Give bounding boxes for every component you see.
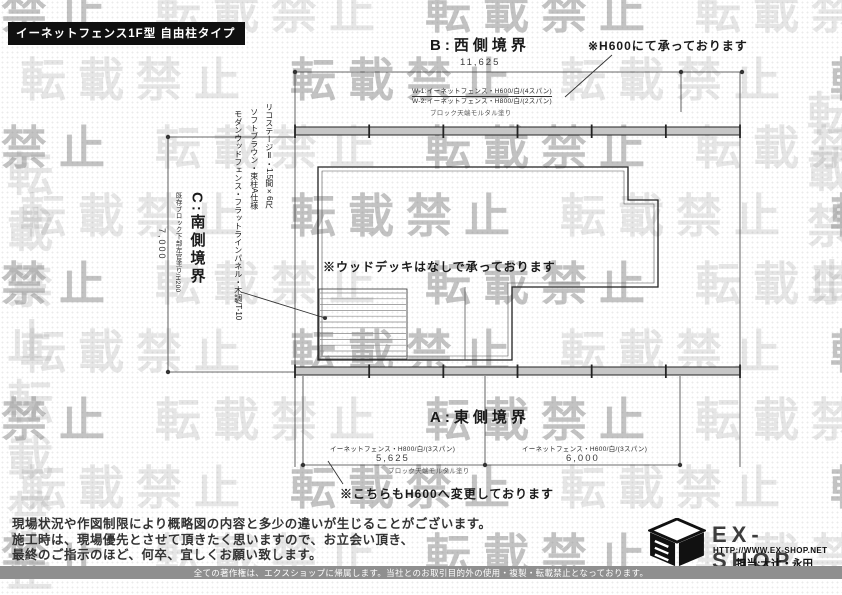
- footer-disclaimer: 現場状況や作図制限により概略図の内容と多少の違いが生じることがございます。 施工…: [12, 517, 492, 564]
- watermark-text: 転載禁止: [0, 112, 117, 178]
- drawing-page: 転載禁止転載禁止転載禁止転載禁止転載禁止転載禁止転載禁止転載禁止転載禁止転載禁止…: [0, 0, 842, 595]
- drawing-title-box: イーネットフェンス1F型 自由柱タイプ: [8, 22, 245, 45]
- east-block-note: ブロック天端モルタル塗り: [388, 468, 470, 475]
- disclaimer-line-1: 現場状況や作図制限により概略図の内容と多少の違いが生じることがございます。: [12, 517, 492, 533]
- west-fence-spec-w2: W-2:イーネットフェンス・H800/白/(2スパン): [412, 98, 552, 105]
- wood-deck: [319, 289, 407, 359]
- watermark-text: 転載禁止: [0, 248, 117, 314]
- east-seg1-dimension: 5,625: [376, 454, 410, 464]
- deck-product-line3: モダンウッドフェンス・フラットラインパネル・木調/T-10: [233, 110, 242, 320]
- deck-leader-dot: [323, 316, 327, 320]
- disclaimer-line-2: 施工時は、現場優先とさせて頂きたく思いますので、お立会い頂き、: [12, 533, 492, 549]
- disclaimer-line-3: 最終のご指示のほど、何卒、宜しくお願い致します。: [12, 548, 492, 564]
- deck-product-line2: ソフトブラウン・束柱A仕様: [249, 108, 258, 209]
- watermark-text-vertical: 転載禁止: [0, 150, 60, 374]
- fence-posts: [295, 125, 740, 379]
- south-boundary-label: C:南側境界: [188, 192, 205, 286]
- copyright-bar: 全ての著作権は、エクスショップに帰属します。当社とのお取引目的外の使用・複製・転…: [0, 566, 842, 579]
- west-boundary-label: B:西側境界: [430, 38, 530, 55]
- south-existing-block-note: 既存ブロック下部左官塗り/H200: [174, 192, 181, 292]
- watermark-text: 転載禁止: [0, 384, 117, 450]
- deck-cancel-note: ※ウッドデッキはなしで承っております: [323, 261, 556, 274]
- east-seg2-dimension: 6,000: [566, 454, 600, 464]
- deck-product-line1: リコステージⅡ・1.5間×6尺: [264, 103, 273, 209]
- copyright-text: 全ての著作権は、エクスショップに帰属します。当社とのお取引目的外の使用・複製・転…: [194, 567, 649, 579]
- south-dimension: 7,000: [156, 228, 166, 261]
- east-h600-note: ※こちらもH600へ変更しております: [340, 488, 554, 501]
- west-fence-spec-w1: W-1:イーネットフェンス・H600/白/(4スパン): [412, 88, 552, 97]
- drawing-title: イーネットフェンス1F型 自由柱タイプ: [16, 28, 235, 40]
- exshop-url: HTTP://WWW.EX-SHOP.NET: [713, 546, 827, 555]
- west-dimension: 11,625: [460, 58, 500, 68]
- west-h600-note: ※H600にて承っております: [588, 40, 748, 53]
- east-boundary-label: A:東側境界: [430, 410, 530, 427]
- west-block-note: ブロック天端モルタル塗り: [430, 110, 512, 117]
- exshop-box-icon: [648, 518, 706, 568]
